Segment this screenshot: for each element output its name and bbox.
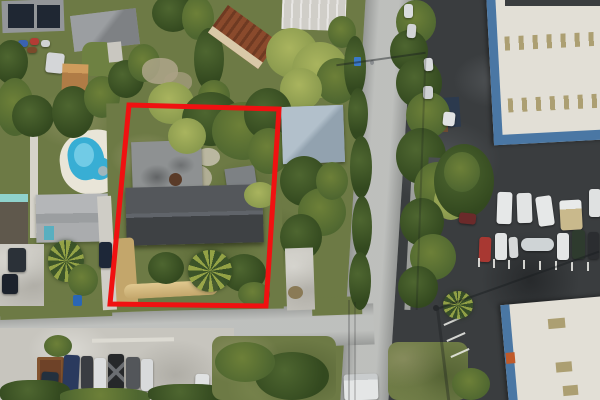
property-boundary-outline [110,105,279,306]
aerial-photo [0,0,600,400]
annotation-overlay [0,0,600,400]
